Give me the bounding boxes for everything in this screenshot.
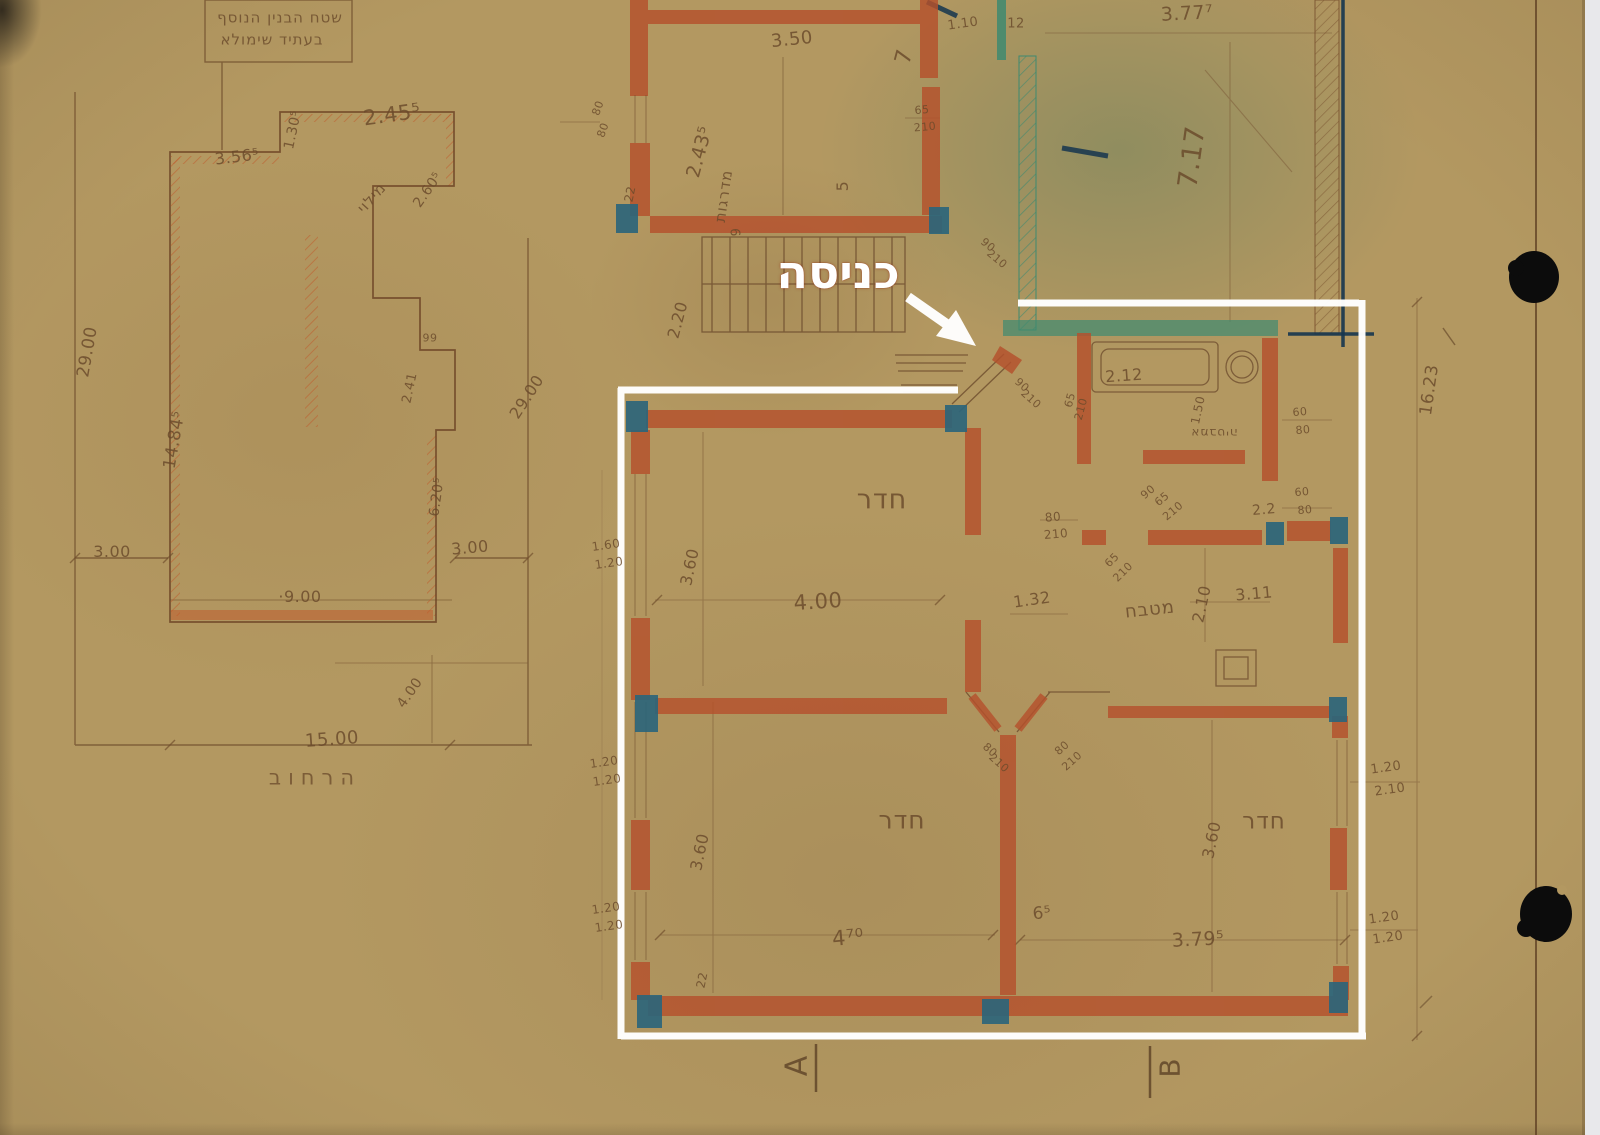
room-br-label: חדר — [1242, 811, 1286, 834]
kitchen-label: מטבח — [1124, 598, 1176, 621]
dim-label: 210 — [913, 121, 936, 134]
dim-label: 6⁵ — [1032, 905, 1052, 924]
dim-label: 3.00 — [93, 544, 131, 560]
fold-line — [1420, 0, 1536, 1135]
dim-label: 3.79⁵ — [1171, 929, 1224, 951]
dim-label: 4.00 — [793, 590, 843, 614]
hall-room-label: חדר — [857, 487, 908, 514]
dim-label: 80 — [1297, 504, 1313, 516]
dim-label: 3.50 — [770, 29, 814, 51]
site-building-footprint — [170, 112, 455, 622]
dim-label: 2.12 — [1105, 367, 1144, 386]
dim-label: 1.20 — [594, 555, 624, 571]
scan-background-strip — [1585, 0, 1600, 1135]
hole-punches — [1508, 251, 1572, 942]
plan-drawing — [0, 0, 1600, 1135]
section-marker-a: A — [780, 1056, 815, 1077]
section-marker-b: B — [1154, 1058, 1187, 1077]
dim-label: 22 — [622, 185, 637, 203]
dim-label: 5 — [835, 181, 851, 192]
red-walls — [630, 0, 1349, 1016]
dim-label: 1.20 — [589, 754, 619, 770]
site-note-line2: בעתיד שימולא — [220, 33, 323, 48]
dim-label: 80 — [1295, 424, 1311, 436]
staircase — [702, 57, 1110, 732]
dim-label: 12 — [1007, 18, 1025, 31]
entrance-label: כניסה — [776, 245, 899, 299]
dim-label: 15.00 — [304, 729, 359, 751]
dim-label: 80 — [1044, 510, 1061, 523]
dim-label: ·9.00 — [278, 589, 321, 605]
street-label: הרחוב — [269, 768, 361, 789]
dim-label: 4⁷⁰ — [831, 926, 864, 950]
stove — [1216, 650, 1256, 686]
hole-punch — [1509, 251, 1559, 303]
dim-label: 22 — [694, 971, 709, 989]
dim-label: 1.20 — [592, 772, 622, 788]
dim-label: 2.2 — [1252, 502, 1277, 518]
dim-label: 9 — [731, 228, 744, 237]
scanned-floor-plan: שטח הבנין הנוסף בעתיד שימולא הרחוב מילוי… — [0, 0, 1600, 1135]
room-bl-label: חדר — [878, 808, 925, 833]
bath-label: אמבטיה — [1190, 427, 1237, 439]
dim-label: 60 — [1294, 486, 1310, 498]
dim-label: 99 — [423, 333, 438, 344]
site-note-line1: שטח הבנין הנוסף — [217, 11, 343, 26]
dim-label: 1.60 — [591, 537, 621, 553]
dim-label: 1.20 — [591, 900, 621, 916]
red-wall-stubs — [972, 696, 1044, 729]
dim-label: 65 — [914, 104, 930, 116]
dim-label: 3.11 — [1235, 584, 1274, 603]
dim-label: 3.77⁷ — [1160, 3, 1213, 25]
teal-walls — [927, 0, 1374, 347]
dim-label: 3.00 — [451, 538, 490, 557]
dim-label: 7.17 — [1174, 124, 1209, 189]
dim-label: 60 — [1292, 406, 1308, 418]
entrance-arrow — [908, 297, 976, 346]
dim-label: 210 — [1043, 527, 1068, 541]
dim-label: 1.20 — [594, 918, 624, 934]
section-marker-bars — [816, 1044, 1150, 1098]
